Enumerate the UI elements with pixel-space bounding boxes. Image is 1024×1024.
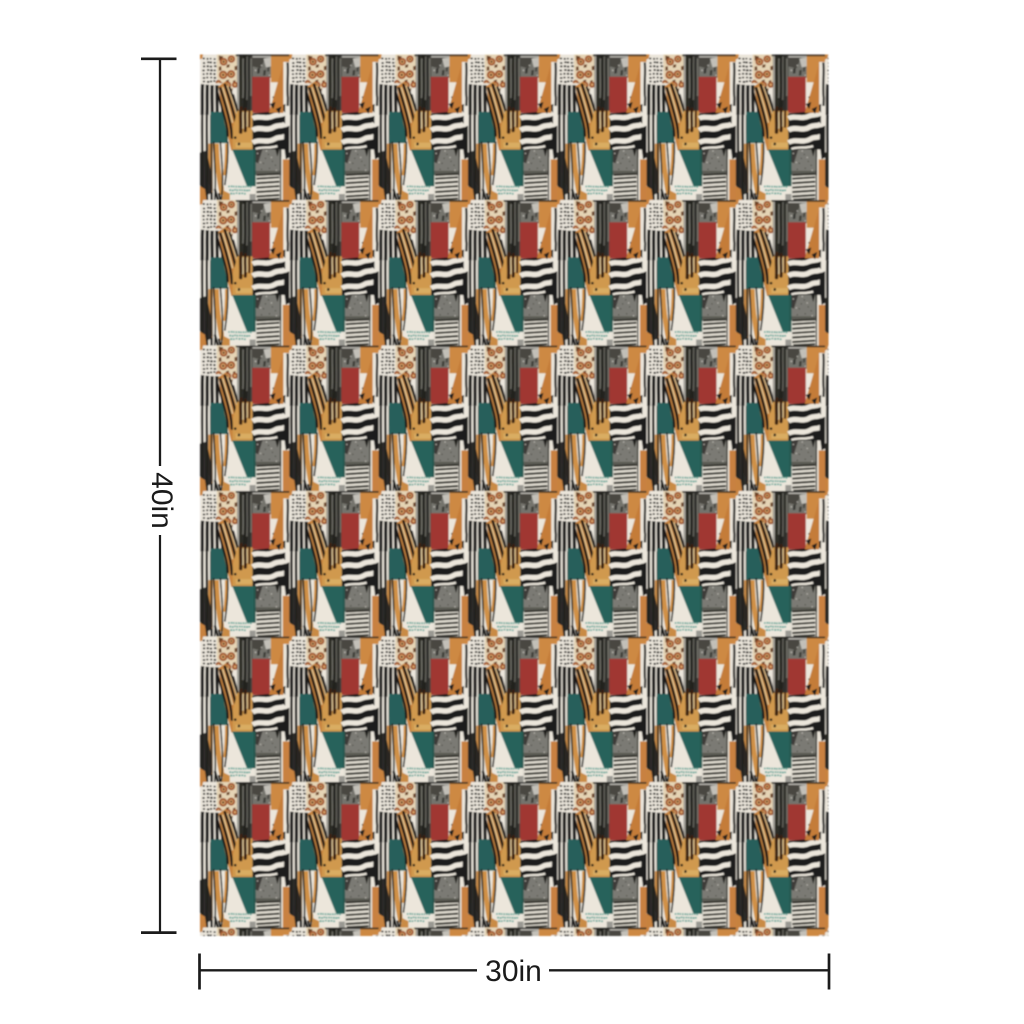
svg-text:40in: 40in [145, 472, 178, 529]
svg-text:30in: 30in [485, 955, 542, 988]
